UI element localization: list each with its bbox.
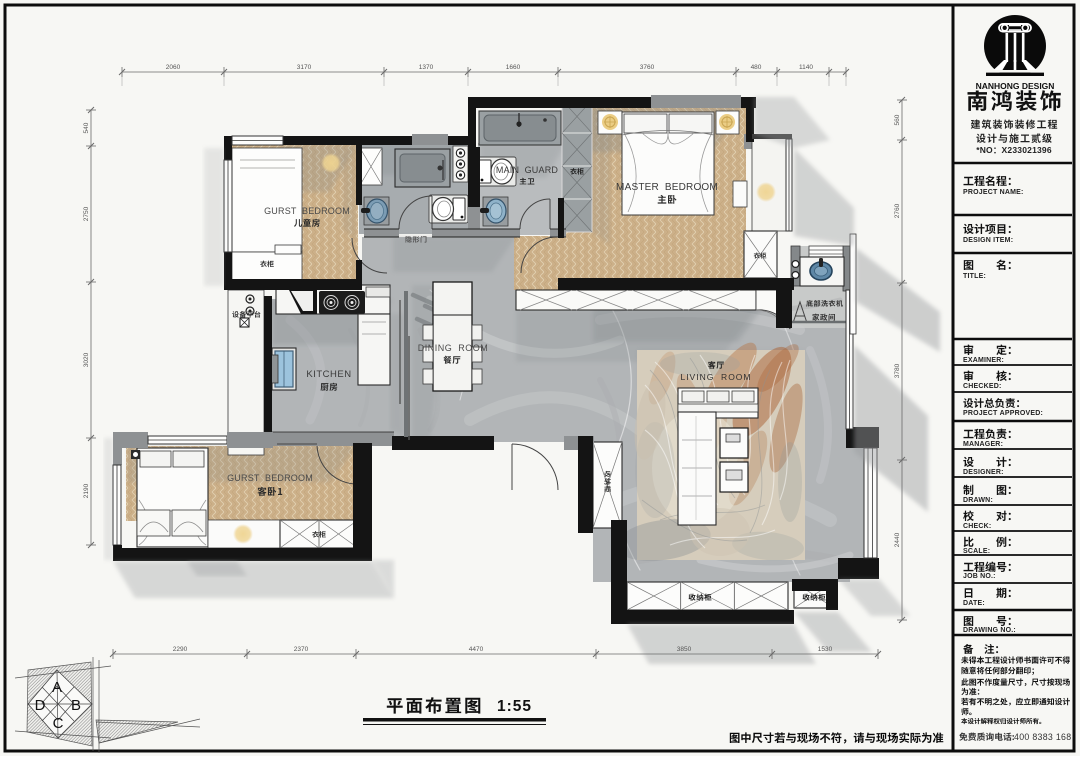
svg-text:PROJECT NAME:: PROJECT NAME: [963, 189, 1024, 196]
svg-text:2440: 2440 [894, 532, 901, 547]
svg-text:1370: 1370 [419, 64, 434, 71]
svg-text:TITLE:: TITLE: [963, 273, 986, 280]
svg-text:CHECK:: CHECK: [963, 523, 991, 530]
svg-text:DATE:: DATE: [963, 600, 985, 607]
svg-text:1140: 1140 [799, 64, 813, 71]
svg-text:3780: 3780 [894, 363, 901, 378]
svg-text:NANHONG DESIGN: NANHONG DESIGN [976, 81, 1055, 91]
svg-text:DRAWING NO.:: DRAWING NO.: [963, 627, 1016, 634]
svg-text:1:55: 1:55 [497, 698, 532, 715]
svg-text:1660: 1660 [506, 64, 521, 71]
svg-text:CHECKED:: CHECKED: [963, 383, 1002, 390]
svg-text:D: D [35, 697, 46, 714]
svg-text:2290: 2290 [173, 646, 188, 653]
svg-text:GURST BEDROOM: GURST BEDROOM [227, 473, 313, 483]
svg-text:1530: 1530 [818, 646, 833, 653]
svg-text:*NO：X233021396: *NO：X233021396 [976, 145, 1052, 155]
svg-text:PROJECT APPROVED:: PROJECT APPROVED: [963, 410, 1043, 417]
svg-text:560: 560 [894, 114, 901, 125]
svg-text:DINING ROOM: DINING ROOM [418, 343, 489, 353]
svg-text:GURST BEDROOM: GURST BEDROOM [264, 206, 350, 216]
svg-text:3020: 3020 [83, 352, 90, 367]
svg-text:C: C [53, 715, 64, 732]
svg-text:3170: 3170 [297, 64, 312, 71]
svg-text:2190: 2190 [83, 483, 90, 498]
svg-text:400 8383 168: 400 8383 168 [1014, 732, 1071, 742]
svg-text:4470: 4470 [469, 646, 484, 653]
svg-text:2370: 2370 [294, 646, 309, 653]
svg-text:2750: 2750 [83, 206, 90, 221]
svg-text:MASTER BEDROOM: MASTER BEDROOM [616, 182, 718, 193]
svg-text:2060: 2060 [166, 64, 181, 71]
svg-text:SCALE:: SCALE: [963, 548, 990, 555]
svg-text:3850: 3850 [677, 646, 692, 653]
svg-text:B: B [71, 697, 81, 714]
svg-text:A: A [52, 679, 62, 696]
svg-text:JOB NO.:: JOB NO.: [963, 573, 996, 580]
svg-text:MANAGER:: MANAGER: [963, 441, 1003, 448]
svg-text:KITCHEN: KITCHEN [306, 369, 351, 380]
svg-text:MAIN GUARD: MAIN GUARD [496, 165, 559, 175]
svg-text:480: 480 [751, 64, 762, 71]
svg-text:540: 540 [83, 122, 90, 133]
svg-text:DRAWN:: DRAWN: [963, 497, 993, 504]
svg-text:EXAMINER:: EXAMINER: [963, 357, 1004, 364]
svg-text:DESIGNER:: DESIGNER: [963, 469, 1004, 476]
svg-text:3760: 3760 [640, 64, 655, 71]
svg-text:DESIGN ITEM:: DESIGN ITEM: [963, 237, 1013, 244]
svg-text:LIVING ROOM: LIVING ROOM [680, 372, 751, 382]
svg-text:2760: 2760 [894, 203, 901, 218]
